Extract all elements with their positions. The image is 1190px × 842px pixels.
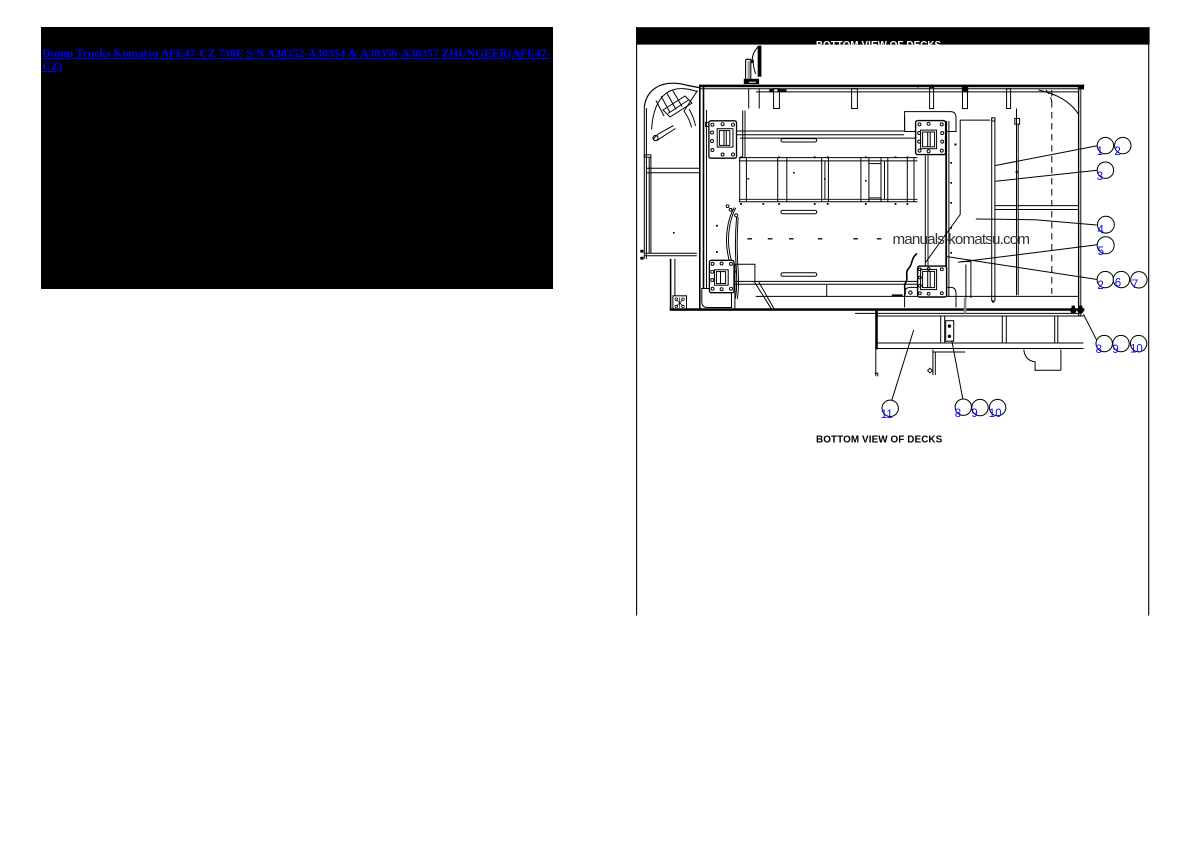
svg-text:manuals-komatsu.com: manuals-komatsu.com: [893, 231, 1030, 248]
svg-text:6: 6: [1115, 278, 1121, 290]
svg-text:BOTTOM VIEW OF DECKS: BOTTOM VIEW OF DECKS: [816, 435, 943, 446]
svg-text:10: 10: [989, 408, 1002, 420]
svg-text:11: 11: [881, 409, 893, 421]
svg-text:8: 8: [1096, 344, 1102, 356]
svg-text:4: 4: [1097, 225, 1104, 237]
svg-text:10: 10: [1130, 343, 1143, 355]
svg-text:3: 3: [1097, 171, 1103, 183]
svg-text:8: 8: [955, 408, 961, 420]
svg-text:2: 2: [1097, 280, 1103, 292]
svg-text:BOTTOM VIEW OF DECKS: BOTTOM VIEW OF DECKS: [816, 40, 942, 51]
svg-text:2: 2: [1114, 146, 1120, 158]
svg-text:7: 7: [1132, 279, 1138, 291]
svg-text:9: 9: [971, 408, 977, 420]
svg-text:5: 5: [1098, 246, 1104, 258]
svg-text:9: 9: [1112, 344, 1118, 356]
svg-text:1: 1: [1097, 146, 1103, 158]
